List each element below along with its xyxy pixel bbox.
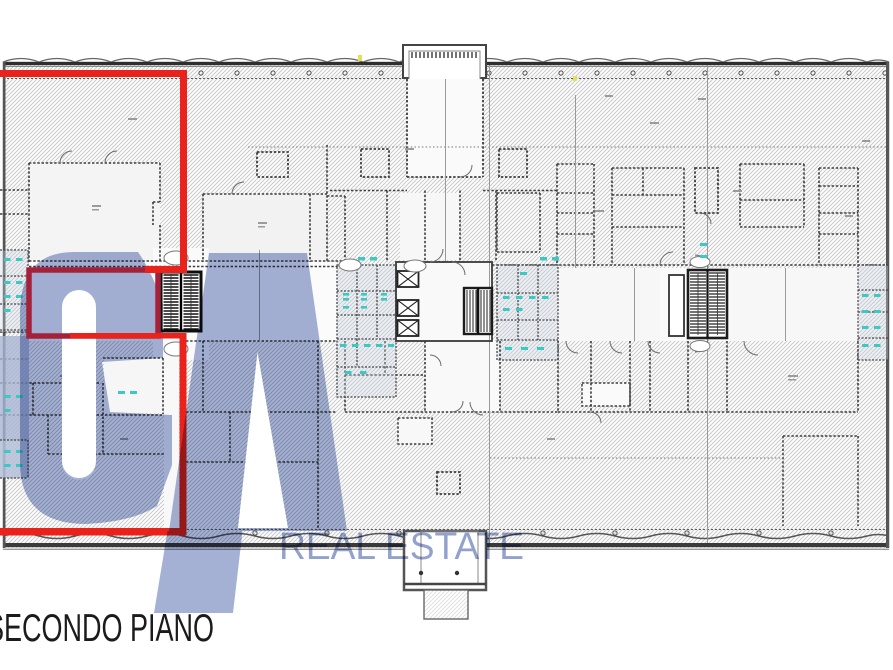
svg-text:SECONDO PIANO: SECONDO PIANO [0,607,214,650]
svg-text:REAL ESTATE: REAL ESTATE [279,526,524,568]
